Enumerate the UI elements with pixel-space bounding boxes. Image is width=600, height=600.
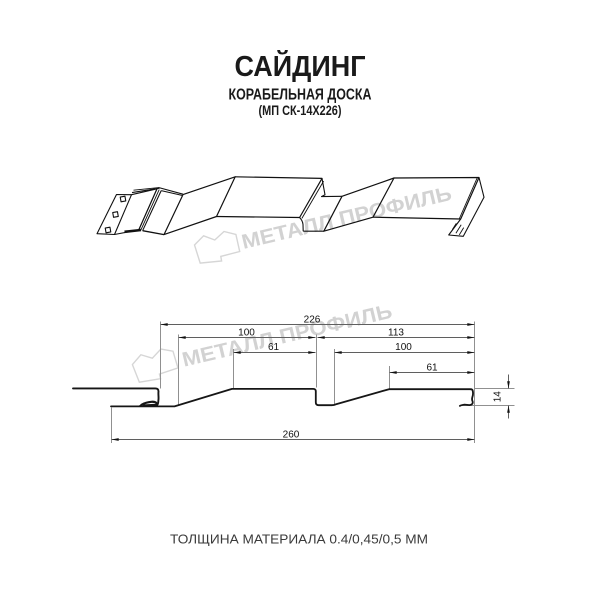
svg-text:ТОЛЩИНА МАТЕРИАЛА 0.4/0,45/0,5: ТОЛЩИНА МАТЕРИАЛА 0.4/0,45/0,5 ММ <box>170 532 428 547</box>
svg-text:14: 14 <box>493 391 504 403</box>
svg-text:КОРАБЕЛЬНАЯ ДОСКА: КОРАБЕЛЬНАЯ ДОСКА <box>229 87 372 104</box>
svg-text:113: 113 <box>388 327 404 338</box>
svg-text:61: 61 <box>426 362 438 373</box>
svg-text:САЙДИНГ: САЙДИНГ <box>235 49 366 83</box>
svg-text:260: 260 <box>283 430 300 441</box>
svg-text:(МП СК-14Х226): (МП СК-14Х226) <box>259 103 342 118</box>
svg-text:226: 226 <box>304 314 321 325</box>
svg-text:100: 100 <box>395 342 412 353</box>
svg-text:61: 61 <box>268 342 280 353</box>
svg-text:100: 100 <box>238 327 255 338</box>
